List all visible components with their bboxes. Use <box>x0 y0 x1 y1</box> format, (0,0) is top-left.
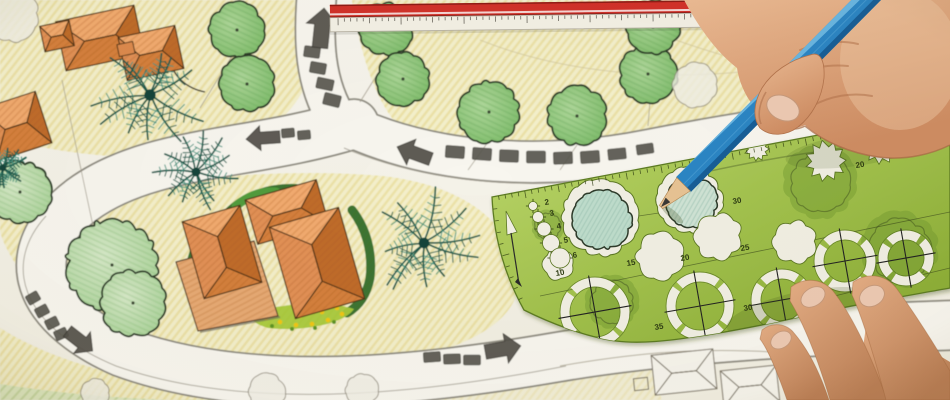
photo-vignette <box>0 0 950 400</box>
landscape-plan-photo: 234561015202530353020 <box>0 0 950 400</box>
scene-svg: 234561015202530353020 <box>0 0 950 400</box>
